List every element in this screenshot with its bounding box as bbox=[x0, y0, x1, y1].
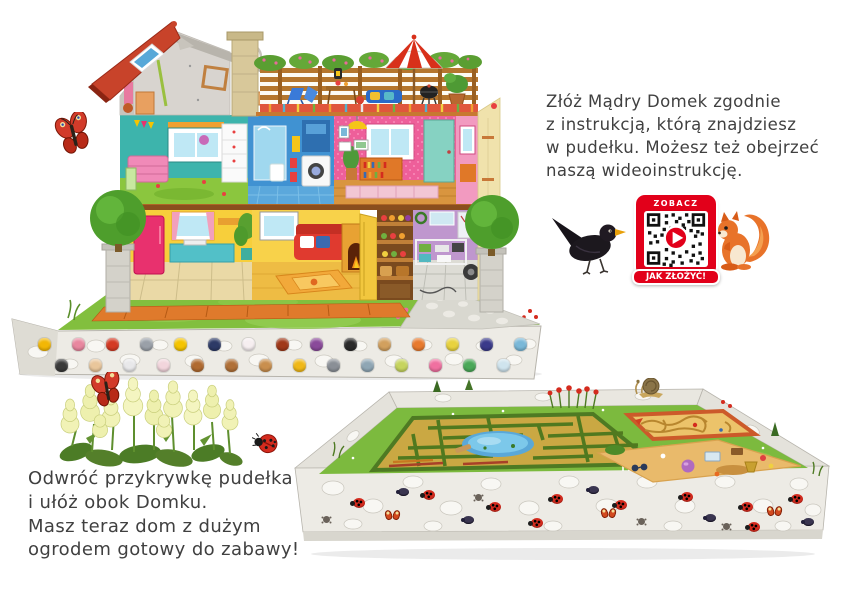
squirrel-figure bbox=[412, 338, 425, 351]
rocking-horse bbox=[378, 338, 391, 351]
alarm-clock bbox=[38, 338, 51, 351]
butterfly-icon bbox=[767, 506, 782, 517]
ladybug-icon bbox=[252, 430, 282, 458]
ladybug-icon bbox=[681, 492, 693, 502]
qr-top-label: ZOBACZ bbox=[639, 198, 713, 209]
ladybug-icon bbox=[741, 502, 753, 512]
flower-bouquet bbox=[72, 338, 85, 351]
mitten bbox=[395, 359, 408, 372]
pliers bbox=[327, 359, 340, 372]
beetle-icon bbox=[463, 516, 474, 524]
ladybug-icon bbox=[423, 490, 435, 500]
pear bbox=[446, 338, 459, 351]
instruction-line: Odwróć przykrywkę pudełka bbox=[28, 467, 328, 491]
spider bbox=[55, 359, 68, 372]
spider-icon bbox=[323, 516, 330, 523]
instruction-line: ogrodem gotowy do zabawy! bbox=[28, 538, 328, 562]
name-plate bbox=[208, 338, 221, 351]
watering-can bbox=[361, 359, 374, 372]
birdhouse bbox=[293, 359, 306, 372]
ladybug-icon bbox=[489, 502, 501, 512]
qr-bottom-label: JAK ZŁOŻYĆ! bbox=[632, 269, 720, 285]
eggs bbox=[89, 359, 102, 372]
paint-roller bbox=[157, 359, 170, 372]
beetle-icon bbox=[705, 514, 716, 522]
blooms bbox=[61, 378, 238, 438]
butterfly-icon bbox=[385, 510, 400, 521]
beetle-icon bbox=[398, 488, 409, 496]
butterfly bbox=[106, 338, 119, 351]
butterfly-icon bbox=[601, 508, 616, 519]
spider-icon bbox=[638, 518, 645, 525]
duck bbox=[174, 338, 187, 351]
postcard bbox=[514, 338, 527, 351]
assembly-instruction-text: Złóż Mądry Domek zgodnie z instrukcją, k… bbox=[546, 90, 842, 182]
instruction-line: Złóż Mądry Domek zgodnie bbox=[546, 90, 842, 113]
scissors bbox=[140, 338, 153, 351]
ladybug-icon bbox=[531, 518, 543, 528]
instruction-line: w pudełku. Możesz też obejrzeć bbox=[546, 136, 842, 159]
lantern bbox=[344, 338, 357, 351]
firewood-box bbox=[276, 338, 289, 351]
ladybug-icon bbox=[551, 494, 563, 504]
squirrel-icon bbox=[710, 206, 774, 272]
slippers bbox=[242, 338, 255, 351]
ladybug-icon bbox=[353, 498, 365, 508]
ladybug-icon bbox=[791, 494, 803, 504]
umbrella-toy bbox=[429, 359, 442, 372]
ladybug-icon bbox=[748, 522, 760, 532]
qr-video-badge[interactable]: ZOBACZ bbox=[636, 195, 716, 276]
ladybug-icon bbox=[615, 500, 627, 510]
tennis-racket bbox=[497, 359, 510, 372]
guitar bbox=[480, 338, 493, 351]
instruction-page: Złóż Mądry Domek zgodnie z instrukcją, k… bbox=[0, 0, 842, 595]
bowl bbox=[191, 359, 204, 372]
garden-instruction-text: Odwróć przykrywkę pudełka i ułóż obok Do… bbox=[28, 467, 328, 562]
beetle-icon bbox=[803, 518, 814, 526]
jam-jar bbox=[310, 338, 323, 351]
spider-icon bbox=[723, 523, 730, 530]
teddy-bear bbox=[225, 359, 238, 372]
instruction-line: naszą wideoinstrukcję. bbox=[546, 159, 842, 182]
spider-icon bbox=[475, 494, 482, 501]
instruction-line: i ułóż obok Domku. bbox=[28, 491, 328, 515]
paint-palette bbox=[123, 359, 136, 372]
qr-code bbox=[644, 211, 708, 267]
butterfly-icon bbox=[52, 112, 98, 162]
base-wall-objects bbox=[8, 8, 553, 380]
table-lamp bbox=[463, 359, 476, 372]
beetle-icon bbox=[588, 486, 599, 494]
blackbird-icon bbox=[546, 208, 628, 276]
wooden-spoon bbox=[259, 359, 272, 372]
flowers-illustration bbox=[42, 372, 247, 472]
instruction-line: Masz teraz dom z dużym bbox=[28, 515, 328, 539]
instruction-line: z instrukcją, którą znajdziesz bbox=[546, 113, 842, 136]
garden-wall-bugs bbox=[293, 378, 838, 563]
